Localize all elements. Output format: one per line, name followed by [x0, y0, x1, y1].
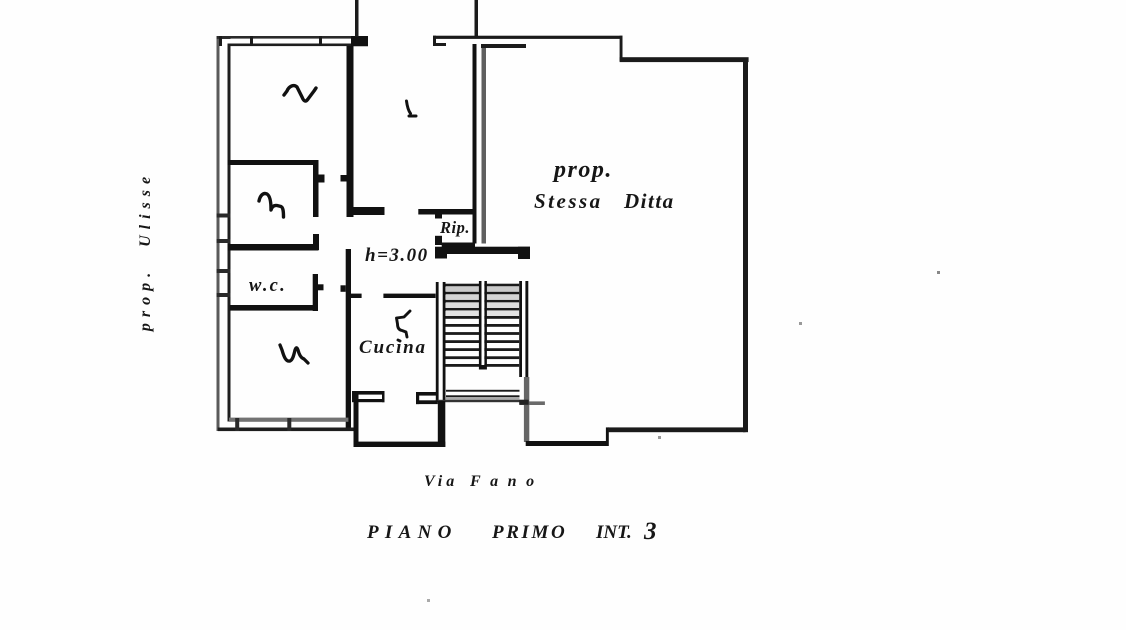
svg-text:Cucina: Cucina [359, 337, 427, 358]
svg-text:Ditta: Ditta [623, 189, 675, 213]
svg-text:Stessa: Stessa [534, 189, 603, 213]
svg-text:Via: Via [424, 473, 458, 490]
svg-text:h=3.00: h=3.00 [365, 245, 429, 266]
svg-text:Rip.: Rip. [439, 218, 470, 237]
svg-text:Fano: Fano [469, 473, 544, 490]
svg-text:3: 3 [643, 518, 657, 545]
svg-text:PIANO: PIANO [366, 522, 458, 543]
svg-text:prop.: prop. [552, 157, 613, 183]
svg-text:INT.: INT. [595, 522, 632, 543]
svg-text:prop. Ulisse: prop. Ulisse [137, 171, 154, 333]
svg-text:w.c.: w.c. [249, 276, 287, 296]
svg-text:PRIMO: PRIMO [491, 522, 567, 543]
